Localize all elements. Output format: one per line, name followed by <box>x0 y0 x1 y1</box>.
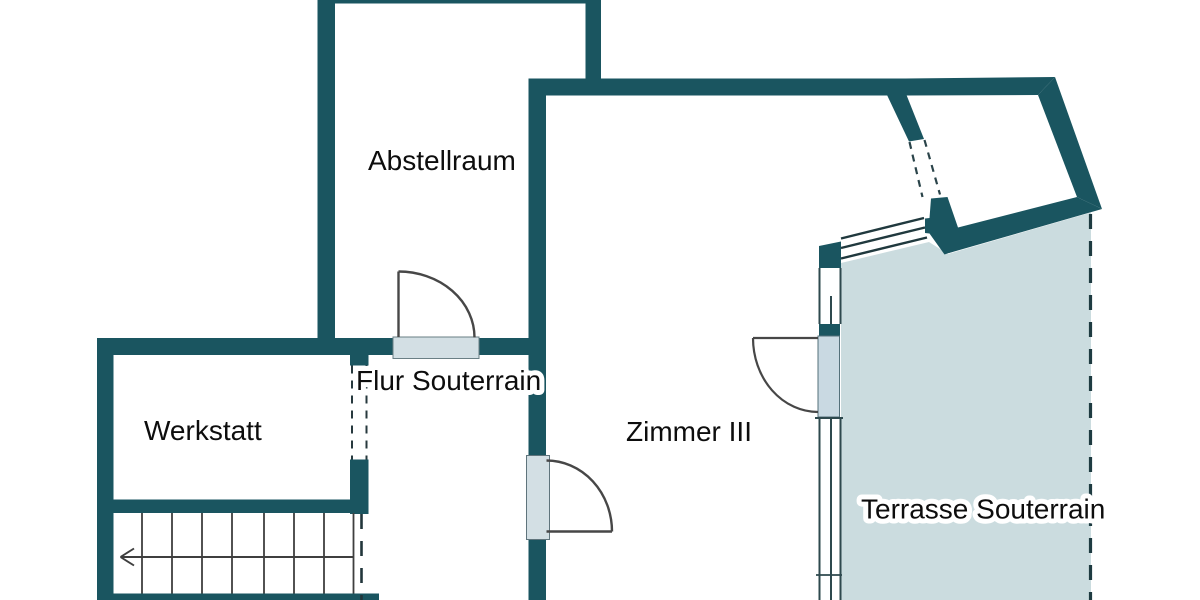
svg-text:Terrasse Souterrain: Terrasse Souterrain <box>861 494 1105 525</box>
svg-text:Werkstatt: Werkstatt <box>144 415 262 446</box>
svg-text:Abstellraum: Abstellraum <box>368 145 516 176</box>
svg-text:Flur Souterrain: Flur Souterrain <box>356 365 541 396</box>
svg-text:Zimmer III: Zimmer III <box>626 416 752 447</box>
